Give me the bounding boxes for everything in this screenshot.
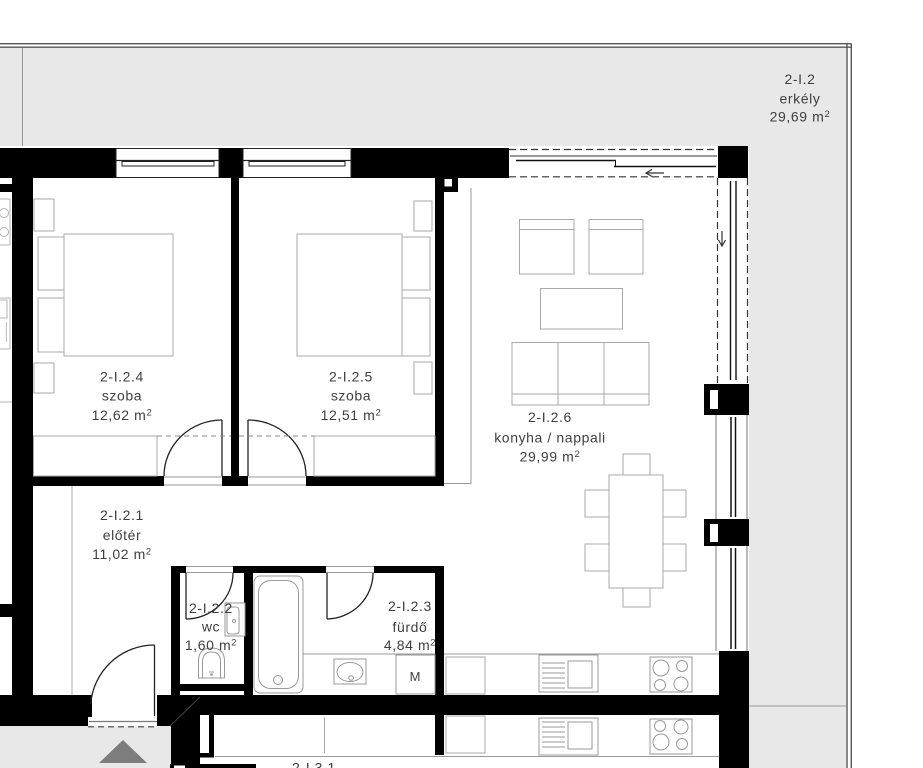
svg-text:29,69 m2: 29,69 m2 — [770, 109, 831, 125]
svg-text:2-I.2.6: 2-I.2.6 — [528, 409, 572, 425]
svg-text:2-I.3.1: 2-I.3.1 — [292, 760, 336, 768]
svg-text:1,60 m2: 1,60 m2 — [185, 637, 237, 653]
svg-text:2-I.2.5: 2-I.2.5 — [329, 369, 373, 385]
svg-text:2-I.2.1: 2-I.2.1 — [100, 507, 144, 523]
svg-text:12,51 m2: 12,51 m2 — [321, 407, 382, 423]
svg-text:szoba: szoba — [331, 388, 371, 404]
svg-text:konyha / nappali: konyha / nappali — [494, 430, 606, 446]
svg-text:4,84 m2: 4,84 m2 — [384, 637, 436, 653]
svg-text:29,99 m2: 29,99 m2 — [520, 449, 581, 465]
svg-text:11,02 m2: 11,02 m2 — [92, 546, 152, 562]
svg-text:erkély: erkély — [780, 91, 821, 107]
svg-text:wc: wc — [201, 619, 220, 635]
svg-text:M: M — [410, 669, 421, 684]
svg-text:szoba: szoba — [102, 388, 142, 404]
svg-text:12,62 m2: 12,62 m2 — [92, 407, 153, 423]
svg-text:2-I.2.2: 2-I.2.2 — [189, 600, 233, 616]
svg-text:2-I.2.3: 2-I.2.3 — [388, 598, 432, 614]
svg-text:2-I.2: 2-I.2 — [784, 71, 815, 87]
svg-text:2-I.2.4: 2-I.2.4 — [100, 369, 144, 385]
svg-text:előtér: előtér — [103, 527, 142, 543]
svg-text:fürdő: fürdő — [393, 619, 428, 635]
